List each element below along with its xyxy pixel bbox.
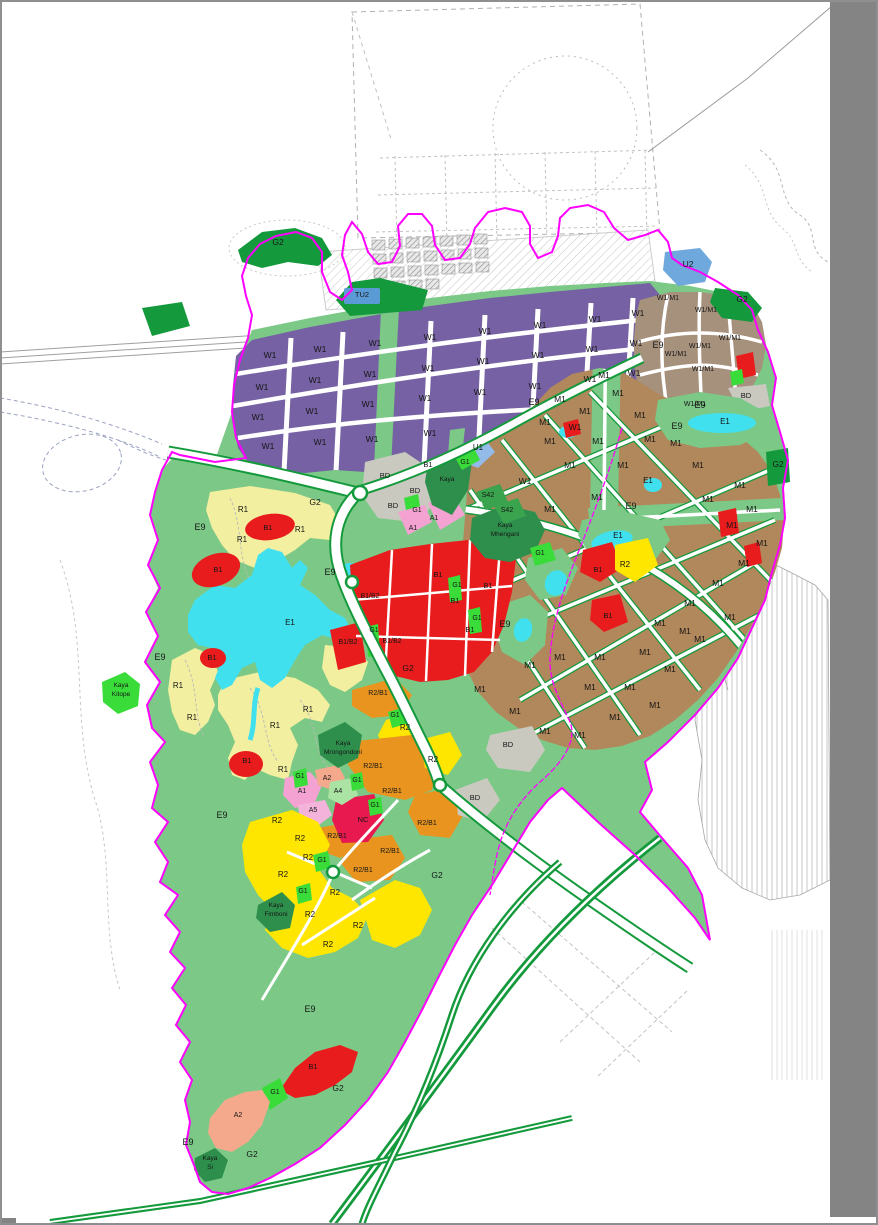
- zone-label-g1: G1: [412, 507, 421, 514]
- zone-label-g1: G1: [270, 1089, 279, 1096]
- zone-label-m1: M1: [539, 726, 551, 736]
- zone-label-b1: B1: [433, 570, 442, 579]
- zone-label-g1: G1: [472, 615, 481, 622]
- zone-label-r2: R2: [278, 870, 289, 879]
- zone-label-g1: G1: [370, 802, 379, 809]
- zone-label-r1: R1: [238, 505, 249, 514]
- zone-label-bd: BD: [470, 793, 481, 802]
- zone-label-m1: M1: [684, 598, 696, 608]
- zone-label-bd: BD: [388, 501, 399, 510]
- zone-label-e9: E9: [499, 619, 510, 629]
- zone-label-m1: M1: [702, 494, 714, 504]
- zone-label-kaya: Kaya: [269, 902, 284, 909]
- zone-label-r2: R2: [305, 910, 316, 919]
- zone-label-m1: M1: [664, 664, 676, 674]
- zone-label-mhengani: Mhengani: [491, 531, 520, 538]
- zone-label-w1-m1: W1/M1: [692, 366, 714, 373]
- zone-label-r2: R2: [400, 723, 411, 732]
- zone-label-m1: M1: [726, 520, 738, 530]
- zone-label-r1: R1: [278, 765, 289, 774]
- zone-label-g2: G2: [332, 1083, 344, 1093]
- zone-label-g1: G1: [317, 857, 326, 864]
- zone-label-m1: M1: [509, 706, 521, 716]
- zone-label-m1: M1: [474, 684, 486, 694]
- zone-label-w1: W1: [366, 434, 379, 444]
- zone-label-kaya: Kaya: [336, 740, 351, 747]
- zone-label-w1: W1: [630, 338, 643, 348]
- zone-label-w1: W1: [422, 363, 435, 373]
- zone-label-m1: M1: [734, 480, 746, 490]
- zone-label-w1: W1: [314, 344, 327, 354]
- zone-label-w1: W1: [569, 422, 582, 432]
- zone-label-w1: W1: [252, 412, 265, 422]
- zone-label-s42: S42: [482, 492, 495, 499]
- parcel-g1: [730, 369, 744, 386]
- zone-label-g2: G2: [402, 663, 414, 673]
- zone-label-w1: W1: [532, 350, 545, 360]
- zone-label-w1-m1: W1/M1: [719, 335, 741, 342]
- zone-label-g1: G1: [535, 550, 544, 557]
- zone-label-g2: G2: [309, 497, 321, 507]
- zone-label-r2-b1: R2/B1: [363, 763, 383, 770]
- zone-label-w1: W1: [589, 314, 602, 324]
- zone-label-r2-b1: R2/B1: [417, 820, 437, 827]
- zone-label-e1: E1: [643, 476, 653, 485]
- zone-label-r2-b1: R2/B1: [368, 690, 388, 697]
- zone-label-e9: E9: [528, 397, 539, 407]
- zone-label-m1: M1: [654, 618, 666, 628]
- zone-label-m1: M1: [634, 410, 646, 420]
- zone-label-w1: W1: [309, 375, 322, 385]
- zone-label-b1: B1: [483, 581, 492, 590]
- zone-label-m1: M1: [544, 504, 556, 514]
- zone-label-g2: G2: [772, 459, 784, 469]
- zone-label-e9: E9: [194, 522, 205, 532]
- zone-label-w1-m1: W1/M1: [695, 307, 717, 314]
- faint-plot-grid: [492, 902, 688, 1076]
- zone-label-m1: M1: [594, 652, 606, 662]
- zone-label-w1: W1: [529, 381, 542, 391]
- zone-label-m1: M1: [564, 460, 576, 470]
- zone-label-kaya: Kaya: [498, 522, 513, 529]
- zone-label-e9: E9: [625, 501, 636, 511]
- zone-label-g2: G2: [431, 870, 443, 880]
- zone-label-m1: M1: [724, 612, 736, 622]
- zone-label-w1-m1: W1/M1: [657, 295, 679, 302]
- zone-label-a1: A1: [409, 525, 418, 532]
- zone-label-r2-b1: R2/B1: [327, 833, 347, 840]
- zone-label-a1: A1: [430, 515, 439, 522]
- zone-label-e9: E9: [182, 1137, 193, 1147]
- zone-label-b1: B1: [263, 523, 272, 532]
- zone-label-e1: E1: [613, 531, 623, 540]
- zone-label-g2: G2: [272, 237, 284, 247]
- zone-label-u2: U2: [683, 259, 694, 269]
- zone-label-nc: NC: [358, 815, 369, 824]
- zone-label-m1: M1: [649, 700, 661, 710]
- zone-label-b1: B1: [242, 756, 251, 765]
- zone-label-m1: M1: [584, 682, 596, 692]
- zone-label-g1: G1: [452, 582, 461, 589]
- zone-label-m1: M1: [539, 417, 551, 427]
- zone-label-a5: A5: [309, 807, 318, 814]
- zone-label-m1: M1: [554, 652, 566, 662]
- zone-label-r1: R1: [173, 681, 184, 690]
- zone-label-r2-b1: R2/B1: [380, 848, 400, 855]
- zone-label-m1: M1: [712, 578, 724, 588]
- zone-label-m1: M1: [524, 660, 536, 670]
- zone-label-m1: M1: [544, 436, 556, 446]
- zone-label-m1: M1: [592, 436, 604, 446]
- zone-label-m1: M1: [617, 460, 629, 470]
- zone-label-b1-b2: B1/B2: [338, 639, 357, 646]
- zone-label-m1: M1: [609, 712, 621, 722]
- zone-label-kaya: Kaya: [114, 682, 129, 689]
- zone-label-m1: M1: [624, 682, 636, 692]
- zone-label-b1-b2: B1/B2: [382, 638, 401, 645]
- zone-label-w1: W1: [479, 326, 492, 336]
- zone-label-u1: U1: [473, 443, 484, 452]
- zone-label-w1: W1: [364, 369, 377, 379]
- boundary-line: [648, 6, 832, 152]
- zone-label-m1: M1: [756, 538, 768, 548]
- zone-label-kitope: Kitope: [112, 691, 131, 698]
- zone-label-w1: W1: [586, 344, 599, 354]
- zone-label-r2-b1: R2/B1: [353, 867, 373, 874]
- zone-label-w1: W1: [369, 338, 382, 348]
- zone-label-e1: E1: [285, 618, 295, 627]
- zone-label-r1: R1: [187, 713, 198, 722]
- zone-label-r2: R2: [272, 816, 283, 825]
- zone-label-g1: G1: [390, 712, 399, 719]
- zone-label-fimboni: Fimboni: [264, 911, 287, 918]
- zone-label-w1: W1: [628, 368, 641, 378]
- zone-label-w1: W1: [474, 387, 487, 397]
- zone-label-e9: E9: [154, 652, 165, 662]
- zone-label-e1: E1: [720, 417, 730, 426]
- zone-label-a2: A2: [234, 1112, 243, 1119]
- zone-label-g2: G2: [246, 1149, 258, 1159]
- zone-label-g1: G1: [295, 773, 304, 780]
- zone-label-s42: S42: [501, 507, 514, 514]
- zone-label-r1: R1: [270, 721, 281, 730]
- zone-label-m1: M1: [692, 460, 704, 470]
- master-plan-page: W1W1W1W1W1W1W1W1W1W1W1W1W1W1W1W1W1W1W1W1…: [0, 0, 878, 1225]
- zone-label-w1-m1: W1/M1: [665, 351, 687, 358]
- zone-label-mrongondoni: Mrongondoni: [324, 749, 362, 756]
- zone-label-r2-b1: R2/B1: [382, 788, 402, 795]
- zone-label-b1: B1: [465, 625, 474, 634]
- zone-label-e9: E9: [324, 567, 335, 577]
- zone-label-r2: R2: [620, 560, 631, 569]
- master-plan-map: W1W1W1W1W1W1W1W1W1W1W1W1W1W1W1W1W1W1W1W1…: [0, 0, 878, 1225]
- zone-label-b1: B1: [213, 565, 222, 574]
- zone-label-m1: M1: [679, 626, 691, 636]
- zone-label-r2: R2: [353, 921, 364, 930]
- page-gray-margin: [830, 0, 878, 1217]
- zone-label-b1: B1: [593, 565, 602, 574]
- zone-label-w1: W1: [264, 350, 277, 360]
- zone-label-w1: W1: [419, 393, 432, 403]
- zone-label-w1: W1: [424, 428, 437, 438]
- zone-label-b1: B1: [308, 1062, 317, 1071]
- zone-label-w1: W1: [256, 382, 269, 392]
- zone-label-g1: G1: [460, 459, 469, 466]
- zone-label-w1: W1: [632, 308, 645, 318]
- zone-label-r2: R2: [295, 834, 306, 843]
- zone-label-w1: W1: [262, 441, 275, 451]
- zone-label-bd: BD: [503, 740, 514, 749]
- zone-label-bd: BD: [410, 486, 421, 495]
- zone-label-e9: E9: [652, 340, 663, 350]
- page-gray-corner: [0, 1218, 16, 1225]
- zone-label-m1: M1: [598, 370, 610, 380]
- zone-label-m1: M1: [694, 634, 706, 644]
- zone-label-tu2: TU2: [355, 290, 369, 299]
- zone-label-r1: R1: [237, 535, 248, 544]
- zone-label-e9: E9: [216, 810, 227, 820]
- zone-label-m1: M1: [574, 730, 586, 740]
- zone-label-m1: M1: [746, 504, 758, 514]
- zone-label-g1: G1: [298, 888, 307, 895]
- zone-label-m1: M1: [579, 406, 591, 416]
- zone-label-m1: M1: [612, 388, 624, 398]
- zone-label-w1: W1: [519, 476, 532, 486]
- zone-label-bd: BD: [380, 471, 391, 480]
- zone-label-m1: M1: [738, 558, 750, 568]
- zone-label-g1: G1: [352, 777, 361, 784]
- zone-label-a1: A1: [298, 788, 307, 795]
- zone-label-b1-b2: B1/B2: [360, 593, 379, 600]
- zone-label-r1: R1: [303, 705, 314, 714]
- zone-label-w1: W1: [534, 320, 547, 330]
- zone-g2: [142, 302, 190, 336]
- zone-label-w1: W1: [362, 399, 375, 409]
- zone-label-r2: R2: [330, 888, 341, 897]
- zone-label-kaya: Kaya: [440, 476, 455, 483]
- zone-label-r2: R2: [323, 940, 334, 949]
- zone-label-m1: M1: [554, 394, 566, 404]
- zone-label-b1: B1: [450, 596, 459, 605]
- zone-label-kaya: Kaya: [203, 1155, 218, 1162]
- zone-label-r2: R2: [303, 853, 314, 862]
- zone-label-b1: B1: [603, 611, 612, 620]
- zone-label-bd: BD: [741, 391, 752, 400]
- zone-label-m1: M1: [644, 434, 656, 444]
- zone-label-w1: W1: [314, 437, 327, 447]
- zone-label-w1-m1: W1/M1: [689, 343, 711, 350]
- zone-label-a2: A2: [323, 775, 332, 782]
- zone-label-si: Si: [207, 1164, 213, 1171]
- zone-label-e9: E9: [694, 400, 705, 410]
- zone-label-m1: M1: [670, 438, 682, 448]
- zone-label-e9: E9: [671, 421, 682, 431]
- zone-label-e9: E9: [304, 1004, 315, 1014]
- zone-label-g1: G1: [369, 627, 378, 634]
- zone-label-r1: R1: [295, 525, 306, 534]
- zone-label-r2: R2: [428, 755, 439, 764]
- road-corridor: [0, 398, 166, 500]
- zone-label-w1: W1: [477, 356, 490, 366]
- zone-label-b1: B1: [423, 460, 432, 469]
- zone-label-m1: M1: [639, 647, 651, 657]
- zone-label-b1: B1: [207, 653, 216, 662]
- zone-label-w1: W1: [584, 374, 597, 384]
- zone-label-w1: W1: [424, 332, 437, 342]
- zone-label-m1: M1: [591, 492, 603, 502]
- zone-label-g2: G2: [736, 294, 748, 304]
- zone-label-w1: W1: [306, 406, 319, 416]
- zone-label-a4: A4: [334, 788, 343, 795]
